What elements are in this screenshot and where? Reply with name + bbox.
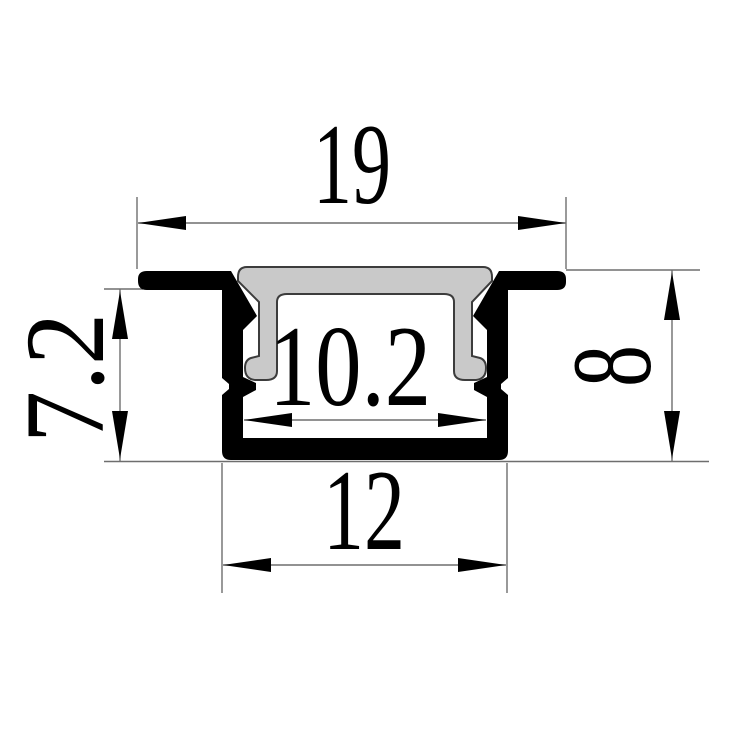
- dim-12-label: 12: [323, 447, 405, 574]
- profile-drawing-canvas: 19 10.2 12 7.2 8: [0, 0, 750, 750]
- dim-8-label: 8: [550, 345, 675, 387]
- dim-19-arrow-right: [518, 216, 566, 230]
- dim-12-arrow-left: [223, 558, 271, 572]
- dim-10-2-label: 10.2: [269, 303, 431, 430]
- dim-8-arrow-down: [664, 411, 680, 459]
- dim-7-2-label: 7.2: [3, 313, 128, 443]
- dimension-labels: 19 10.2 12 7.2 8: [3, 101, 675, 574]
- dim-10-2-arrow-right: [438, 413, 486, 427]
- dim-19-arrow-left: [138, 216, 186, 230]
- drawing-sheet: 19 10.2 12 7.2 8: [0, 0, 750, 750]
- dim-19-label: 19: [313, 101, 391, 228]
- dim-8-arrow-up: [664, 272, 680, 320]
- dim-12-arrow-right: [458, 558, 506, 572]
